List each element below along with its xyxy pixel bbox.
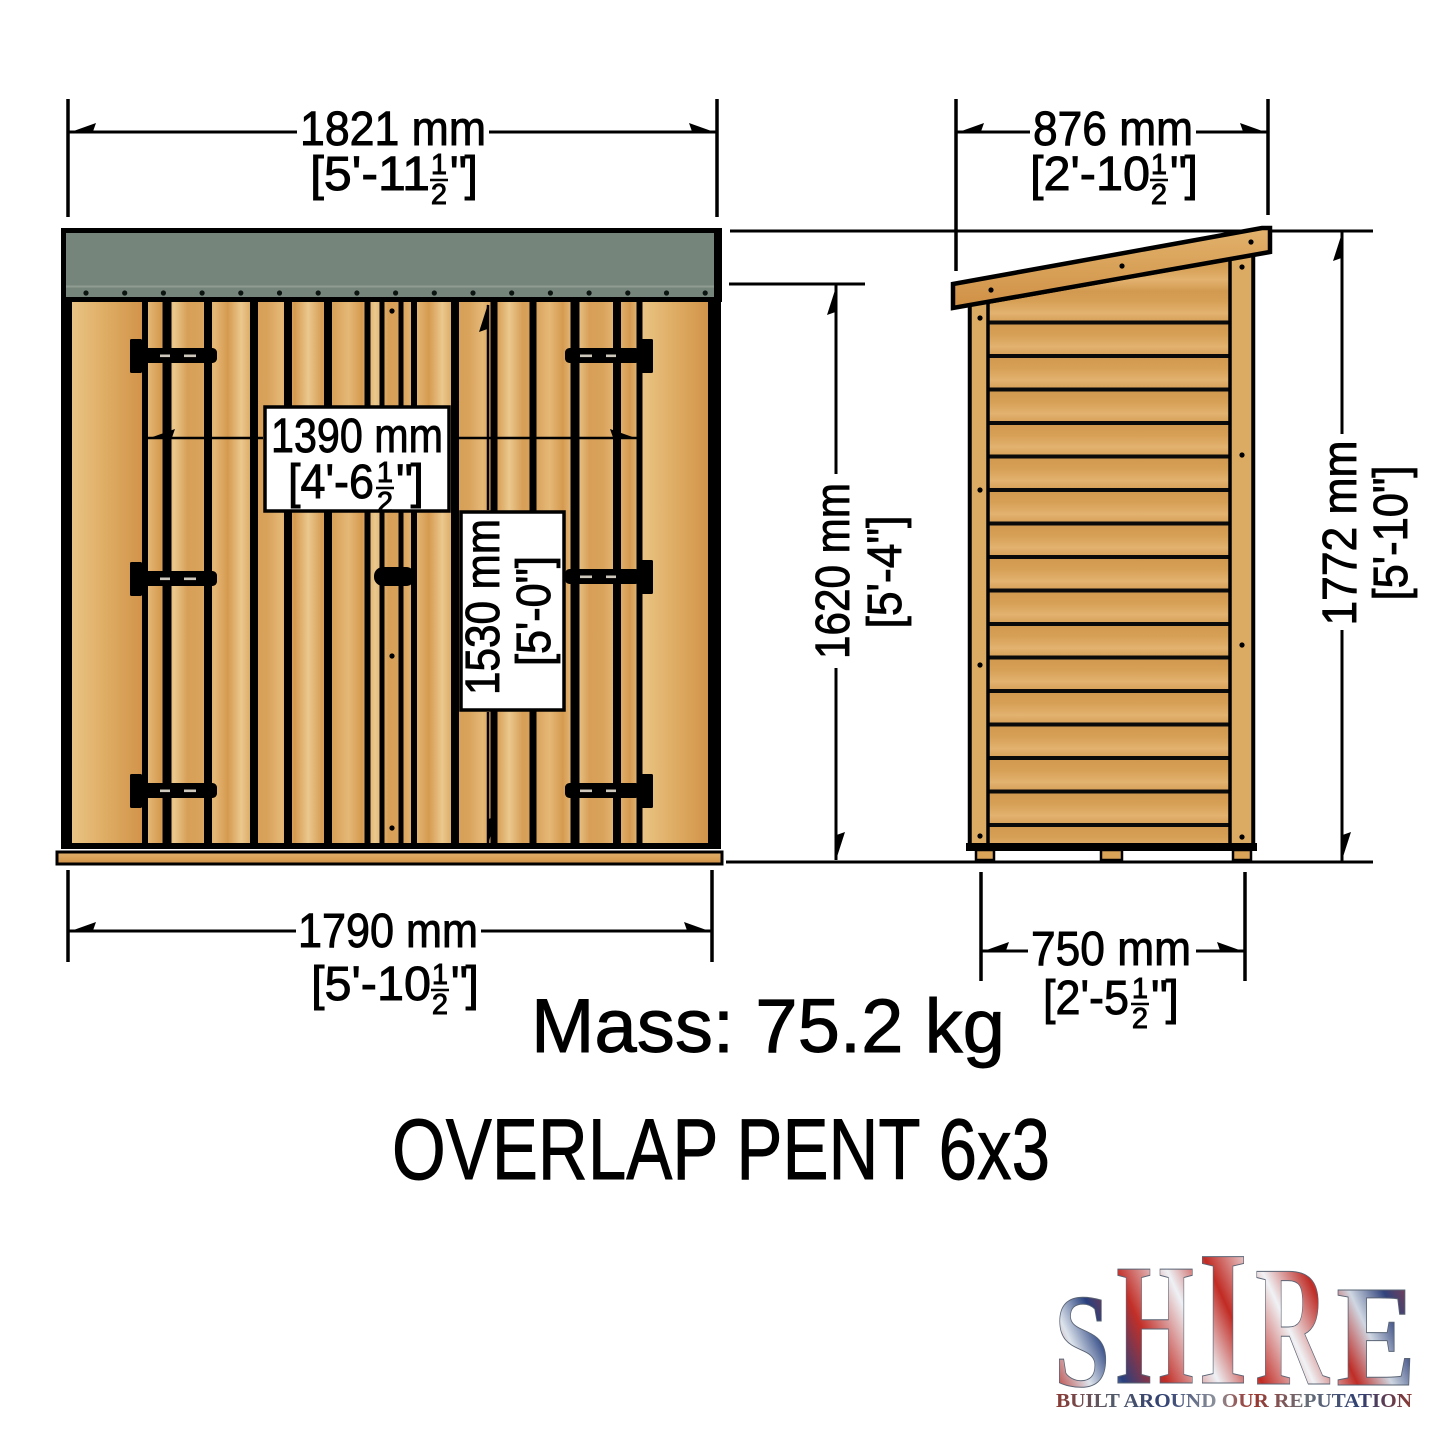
svg-text:2: 2	[1132, 1003, 1148, 1035]
svg-text:1: 1	[432, 959, 448, 991]
svg-text:750 mm: 750 mm	[1031, 923, 1191, 976]
svg-text:[4'-6: [4'-6	[288, 456, 374, 509]
svg-text:2: 2	[432, 989, 448, 1021]
svg-text:"]: "]	[450, 148, 478, 201]
svg-text:[2'-5: [2'-5	[1043, 972, 1129, 1025]
svg-text:2: 2	[431, 179, 447, 211]
svg-text:BUILT AROUND OUR REPUTATION: BUILT AROUND OUR REPUTATION	[1056, 1390, 1413, 1412]
svg-text:"]: "]	[1170, 148, 1198, 201]
svg-text:1772 mm: 1772 mm	[1314, 441, 1367, 626]
svg-text:[5'-10"]: [5'-10"]	[1365, 466, 1418, 601]
svg-text:1790 mm: 1790 mm	[298, 905, 478, 958]
svg-text:1530 mm: 1530 mm	[457, 519, 510, 695]
svg-text:1: 1	[1132, 973, 1148, 1005]
svg-text:[5'-0"]: [5'-0"]	[508, 556, 561, 666]
svg-text:1: 1	[431, 149, 447, 181]
svg-text:1: 1	[1151, 149, 1167, 181]
svg-text:"]: "]	[1151, 972, 1179, 1025]
svg-text:[5'-11: [5'-11	[310, 148, 430, 201]
svg-text:2: 2	[1151, 179, 1167, 211]
svg-text:Mass: 75.2 kg: Mass: 75.2 kg	[531, 984, 1005, 1069]
svg-text:[2'-10: [2'-10	[1030, 148, 1150, 201]
svg-text:2: 2	[377, 487, 393, 519]
svg-text:[5'-10: [5'-10	[311, 958, 431, 1011]
svg-text:1: 1	[377, 457, 393, 489]
svg-text:"]: "]	[396, 456, 424, 509]
svg-text:"]: "]	[451, 958, 479, 1011]
svg-text:OVERLAP PENT 6x3: OVERLAP PENT 6x3	[392, 1102, 1050, 1198]
svg-text:[5'-4"]: [5'-4"]	[859, 516, 912, 629]
svg-text:1620 mm: 1620 mm	[807, 483, 860, 659]
